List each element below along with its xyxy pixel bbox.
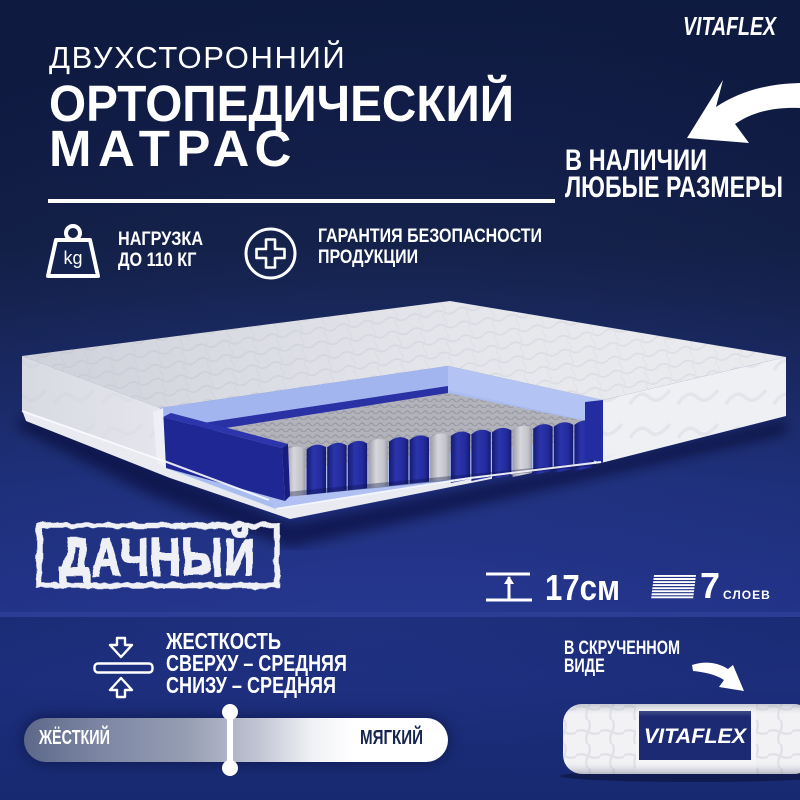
svg-text:kg: kg <box>63 248 82 268</box>
svg-text:ДАЧНЫЙ: ДАЧНЫЙ <box>60 528 256 587</box>
